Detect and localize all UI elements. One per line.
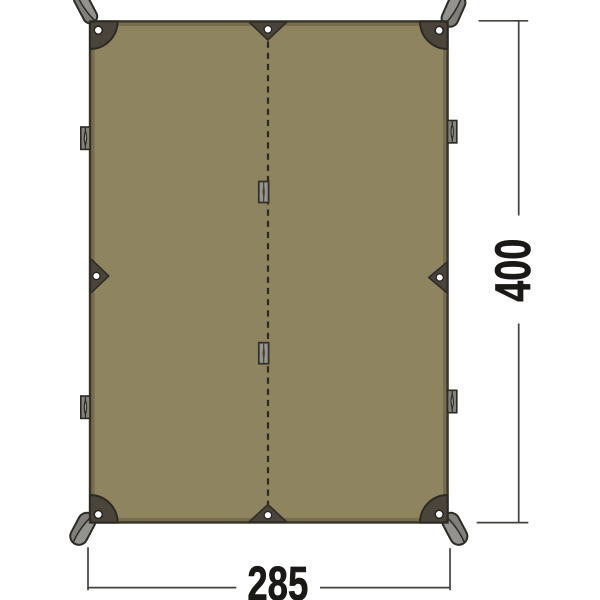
svg-text:400: 400 [486, 239, 541, 302]
svg-text:285: 285 [247, 557, 308, 600]
